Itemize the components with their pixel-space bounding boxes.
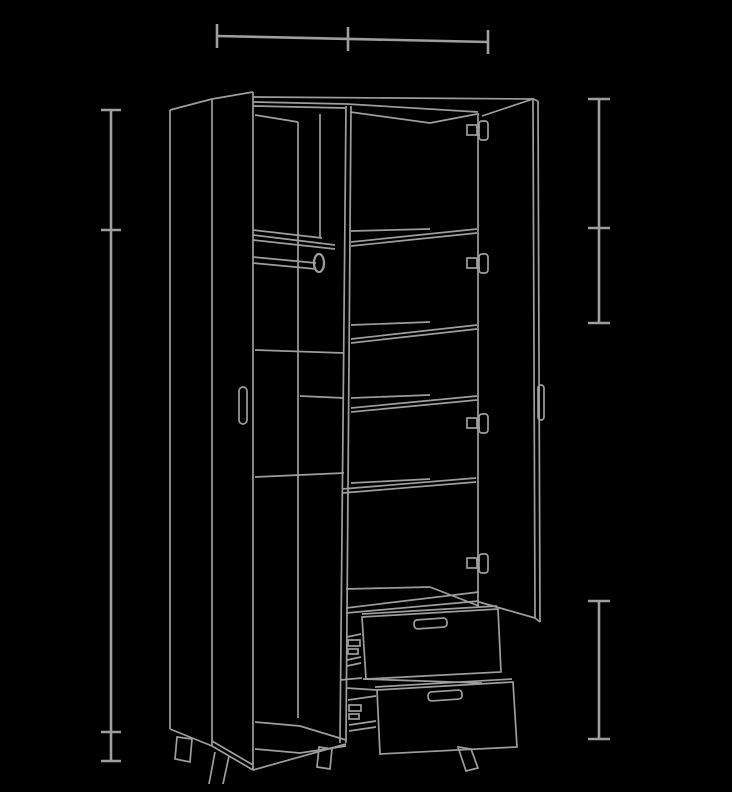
legs bbox=[175, 737, 478, 784]
drawer-upper bbox=[340, 606, 501, 683]
drawer-lower bbox=[346, 679, 517, 754]
dimension-right-lower bbox=[588, 601, 610, 739]
technical-drawing-canvas bbox=[0, 0, 732, 792]
wardrobe-line-drawing bbox=[0, 0, 732, 792]
carcass bbox=[170, 97, 534, 770]
right-door-open bbox=[479, 99, 544, 622]
dimension-top-width bbox=[217, 24, 488, 54]
right-compartment-shelves bbox=[342, 229, 479, 613]
dimension-right-upper bbox=[588, 99, 610, 323]
dimension-left-height bbox=[101, 110, 121, 761]
left-door-ajar bbox=[212, 92, 253, 770]
